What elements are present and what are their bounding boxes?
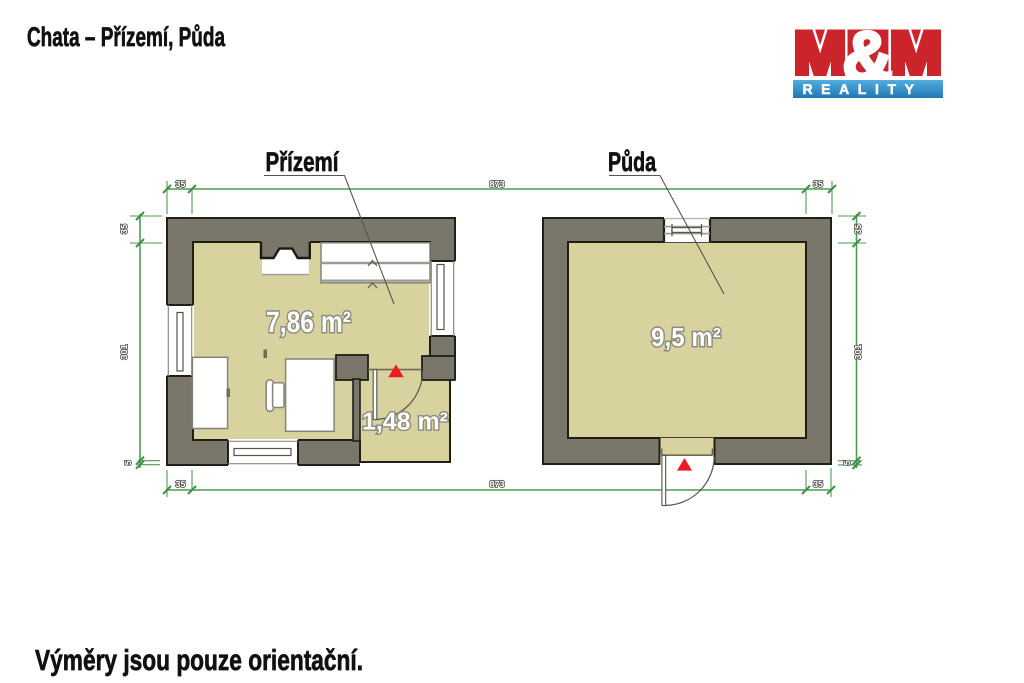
svg-text:Výměry jsou pouze orientační.: Výměry jsou pouze orientační. [35,645,363,677]
svg-text:873: 873 [489,179,504,189]
svg-text:9,5 m²: 9,5 m² [651,322,721,352]
svg-text:Půda: Půda [608,147,657,177]
svg-text:35: 35 [813,179,823,189]
svg-text:35: 35 [175,179,185,189]
svg-text:35: 35 [813,479,823,489]
svg-text:35: 35 [175,479,185,489]
svg-text:301: 301 [119,344,129,359]
svg-text:873: 873 [489,479,504,489]
svg-text:301: 301 [853,344,863,359]
svg-text:35: 35 [853,224,863,234]
svg-text:1,48 m²: 1,48 m² [362,409,448,436]
svg-text:Přízemí: Přízemí [266,147,340,177]
svg-text:Chata – Přízemí, Půda: Chata – Přízemí, Půda [27,22,226,52]
svg-text:7,86 m²: 7,86 m² [266,306,351,339]
svg-text:5: 5 [123,460,133,465]
svg-text:5: 5 [842,460,852,465]
svg-text:REALITY: REALITY [802,81,922,97]
svg-text:35: 35 [119,224,129,234]
